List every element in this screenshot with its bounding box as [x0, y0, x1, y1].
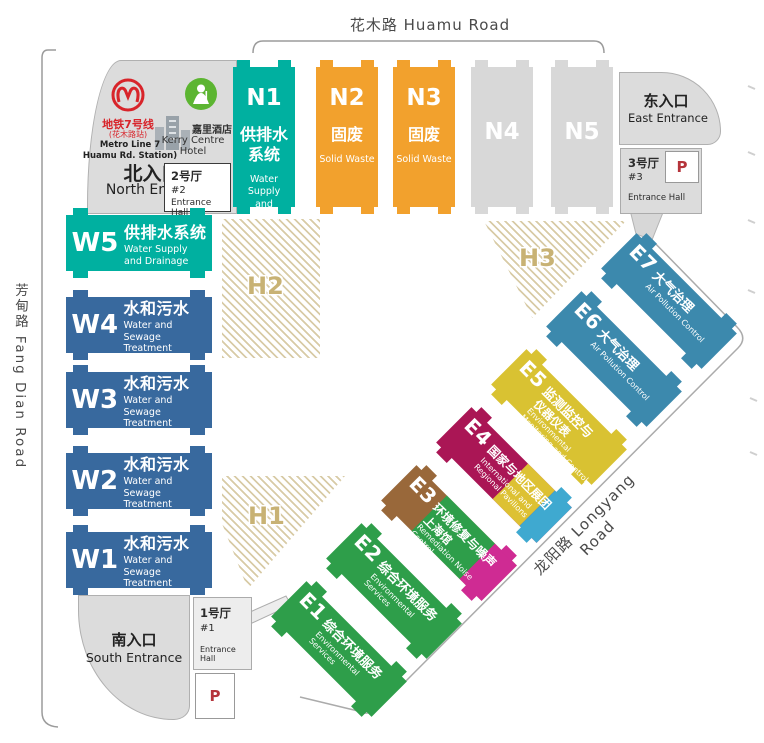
- hall-n2: N2 固废 Solid Waste: [316, 67, 378, 207]
- hall-name-en: Water Supply and Drainage: [124, 244, 207, 267]
- connector-tab: [73, 525, 88, 533]
- kerry-hotel-icon: [184, 77, 218, 111]
- connector-tab: [73, 208, 88, 216]
- road-label-fangdian: 芳甸路 Fang Dian Road: [10, 283, 30, 473]
- entrance-hall-2-box: 2号厅 #2 Entrance Hall: [164, 163, 231, 212]
- connector-tab: [73, 587, 88, 595]
- connector-tab: [190, 365, 205, 373]
- hatch-label-h3: H3: [519, 244, 556, 272]
- connector-tab: [237, 60, 250, 68]
- connector-tab: [73, 365, 88, 373]
- hall-name-zh: 水和污水: [123, 295, 212, 319]
- hall-name-zh: 固废: [393, 125, 455, 145]
- connector-tab: [555, 60, 568, 68]
- east-entrance-label-en: East Entrance: [620, 111, 716, 125]
- hall-name-en: Water and Sewage Treatment: [123, 476, 212, 510]
- hall-id: W3: [66, 385, 123, 415]
- metro-logo-icon: [108, 75, 148, 115]
- connector-tab: [397, 60, 410, 68]
- connector-tab: [361, 206, 374, 214]
- connector-tab: [438, 206, 451, 214]
- south-entrance-label-en: South Entrance: [79, 650, 189, 665]
- hall-id: N5: [551, 119, 613, 145]
- east-entrance-label-zh: 东入口: [620, 90, 712, 111]
- connector-tab: [361, 60, 374, 68]
- hall2-number: #2: [171, 185, 224, 196]
- hall-name-zh: 水和污水: [123, 451, 212, 475]
- connector-tab: [237, 206, 250, 214]
- hall-id: N2: [316, 85, 378, 111]
- connector-tab: [475, 60, 488, 68]
- hall-n3: N3 固废 Solid Waste: [393, 67, 455, 207]
- hall-id: W2: [66, 466, 123, 496]
- connector-tab: [475, 206, 488, 214]
- hall-id: N3: [393, 85, 455, 111]
- parking-badge-south: P: [195, 673, 235, 719]
- hall-w1: W1 水和污水 Water and Sewage Treatment: [66, 532, 212, 588]
- connector-tab: [73, 290, 88, 298]
- connector-tab: [190, 208, 205, 216]
- hall-name-zh: 固废: [316, 125, 378, 145]
- connector-tab: [190, 352, 205, 360]
- hall-id: N1: [233, 85, 295, 111]
- connector-tab: [516, 206, 529, 214]
- connector-tab: [190, 508, 205, 516]
- connector-tab: [320, 60, 333, 68]
- connector-tab: [397, 206, 410, 214]
- hall3-label-zh: 3号厅: [628, 155, 659, 171]
- hall-name-en: Water Supply and Drainage: [233, 174, 295, 223]
- connector-tab: [73, 508, 88, 516]
- hall-id: W4: [66, 310, 123, 340]
- connector-tab: [555, 206, 568, 214]
- entrance-hall-1-box: 1号厅 #1 Entrance Hall: [193, 597, 252, 670]
- connector-tab: [278, 206, 291, 214]
- hall3-label-en: Entrance Hall: [628, 193, 685, 203]
- hatch-label-h1: H1: [248, 502, 285, 530]
- hall-name-en: Water and Sewage Treatment: [123, 320, 212, 354]
- hall-w3: W3 水和污水 Water and Sewage Treatment: [66, 372, 212, 428]
- south-entrance-label-zh: 南入口: [79, 629, 189, 650]
- hall-name-zh: 水和污水: [123, 370, 212, 394]
- hall-name-en: Solid Waste: [393, 154, 455, 166]
- connector-tab: [190, 525, 205, 533]
- connector-tab: [73, 427, 88, 435]
- connector-tab: [190, 446, 205, 454]
- hall-id: W5: [66, 228, 124, 258]
- hall1-label-en: Entrance Hall: [200, 645, 251, 663]
- connector-tab: [516, 60, 529, 68]
- connector-tab: [190, 427, 205, 435]
- hall-name-en: Water and Sewage Treatment: [123, 395, 212, 429]
- hall-w2: W2 水和污水 Water and Sewage Treatment: [66, 453, 212, 509]
- hotel-label-en: Kerry Centre Hotel: [148, 135, 238, 157]
- hall-id: N4: [471, 119, 533, 145]
- hall1-number: #1: [200, 623, 215, 634]
- hall2-label-zh: 2号厅: [171, 168, 224, 184]
- connector-tab: [278, 60, 291, 68]
- hall-w4: W4 水和污水 Water and Sewage Treatment: [66, 297, 212, 353]
- hall1-label-zh: 1号厅: [200, 605, 231, 621]
- expo-floorplan-map: 花木路 Huamu Road 芳甸路 Fang Dian Road 龙阳路 Lo…: [0, 0, 764, 743]
- hall-name-en: Solid Waste: [316, 154, 378, 166]
- connector-tab: [596, 60, 609, 68]
- connector-tab: [190, 587, 205, 595]
- connector-tab: [596, 206, 609, 214]
- connector-tab: [73, 270, 88, 278]
- hall-n1: N1 供排水 系统 Water Supply and Drainage: [233, 67, 295, 207]
- hall-id: W1: [66, 545, 123, 575]
- connector-tab: [190, 290, 205, 298]
- connector-tab: [320, 206, 333, 214]
- hall-name-zh: 供排水 系统: [233, 125, 295, 165]
- road-label-huamu: 花木路 Huamu Road: [330, 14, 530, 35]
- hall-name-en: Water and Sewage Treatment: [123, 555, 212, 589]
- hall-n4: N4: [471, 67, 533, 207]
- connector-tab: [73, 352, 88, 360]
- hall3-number: #3: [628, 172, 643, 183]
- connector-tab: [190, 270, 205, 278]
- hatch-label-h2: H2: [247, 272, 284, 300]
- hall-w5: W5 供排水系统 Water Supply and Drainage: [66, 215, 212, 271]
- connector-tab: [438, 60, 451, 68]
- connector-tab: [73, 446, 88, 454]
- parking-badge-east: P: [665, 151, 699, 183]
- hall-name-zh: 供排水系统: [124, 219, 207, 243]
- hall-name-zh: 水和污水: [123, 530, 212, 554]
- hotel-label-zh: 嘉里酒店: [192, 121, 236, 136]
- hall-n5: N5: [551, 67, 613, 207]
